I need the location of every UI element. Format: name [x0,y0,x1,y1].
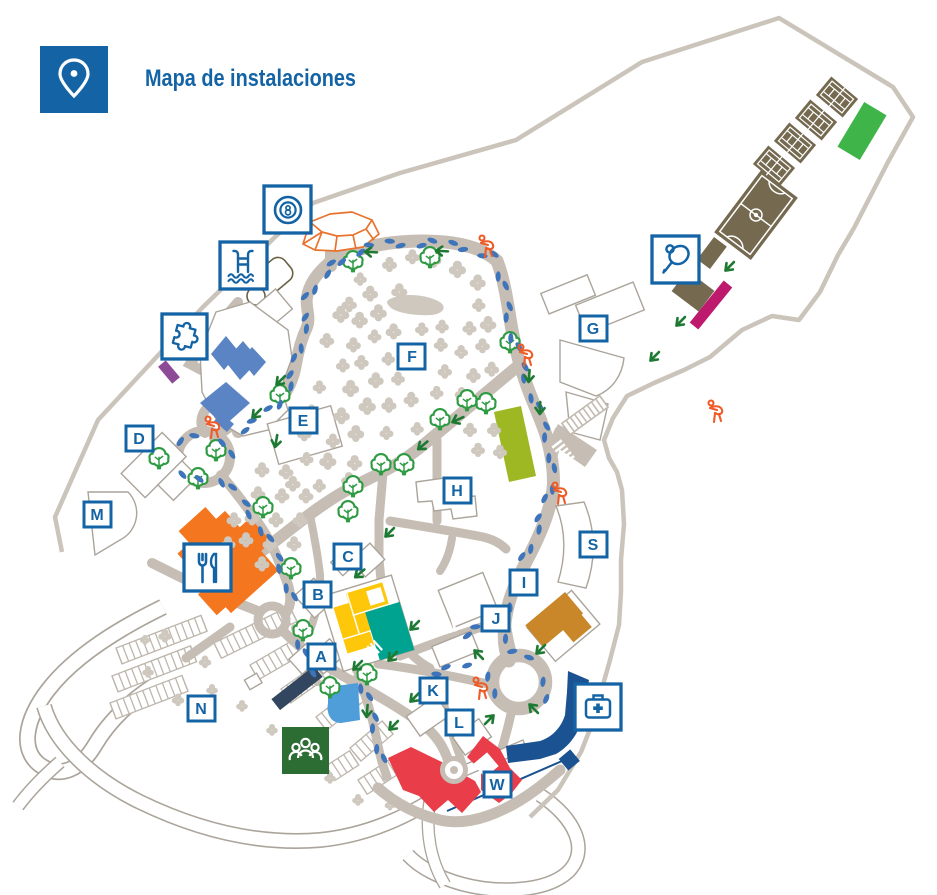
svg-text:L: L [454,715,464,732]
svg-text:A: A [315,649,327,666]
svg-text:F: F [407,349,417,366]
svg-text:N: N [195,701,207,718]
svg-text:Mapa de instalaciones: Mapa de instalaciones [145,65,356,92]
svg-text:H: H [451,483,463,500]
svg-text:J: J [492,611,501,628]
svg-text:G: G [587,321,599,338]
svg-text:E: E [298,413,309,430]
svg-text:W: W [489,777,505,794]
svg-text:S: S [588,537,599,554]
svg-text:K: K [427,683,439,700]
svg-text:D: D [133,431,145,448]
svg-text:C: C [342,549,354,566]
svg-text:I: I [522,575,526,592]
svg-text:B: B [312,587,324,604]
svg-text:M: M [90,507,103,524]
